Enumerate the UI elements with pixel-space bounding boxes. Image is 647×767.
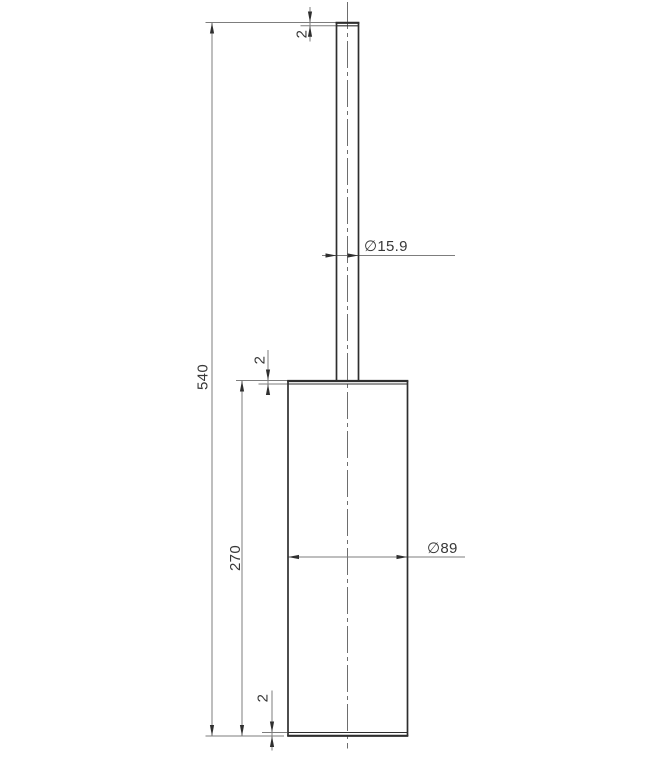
dim-rod-cap-thickness-label: 2 xyxy=(294,30,311,39)
dimension-drawing: 540 270 2 2 2 ∅15.9 ∅89 xyxy=(0,0,647,767)
arrow-270-top xyxy=(240,381,244,392)
dim-body-height-label: 270 xyxy=(227,545,244,571)
dim-body-diameter-label: ∅89 xyxy=(427,540,458,557)
dimension-labels: 540 270 2 2 2 ∅15.9 ∅89 xyxy=(195,30,458,703)
arrow-body-diameter-left xyxy=(288,555,299,559)
arrow-2-body-top-upper xyxy=(266,370,270,381)
arrow-2-body-top-lower xyxy=(266,384,270,395)
arrow-540-top xyxy=(210,23,214,34)
arrow-2-body-bottom-lower xyxy=(270,736,274,747)
arrow-2-rod-top-upper xyxy=(308,12,312,23)
dim-body-bottom-cap-thickness-label: 2 xyxy=(255,694,272,703)
dimension-lines xyxy=(206,7,466,751)
technical-drawing-canvas: 540 270 2 2 2 ∅15.9 ∅89 xyxy=(0,0,647,767)
arrow-rod-diameter-left xyxy=(326,253,337,257)
arrow-2-body-bottom-upper xyxy=(270,722,274,733)
dim-rod-diameter-label: ∅15.9 xyxy=(364,238,408,255)
dim-overall-height-label: 540 xyxy=(195,364,212,390)
arrow-rod-diameter-right xyxy=(348,253,359,257)
arrow-body-diameter-right xyxy=(397,555,408,559)
dimension-arrows xyxy=(210,12,408,748)
dim-body-top-cap-thickness-label: 2 xyxy=(252,356,269,365)
arrow-270-bottom xyxy=(240,725,244,736)
arrow-540-bottom xyxy=(210,725,214,736)
